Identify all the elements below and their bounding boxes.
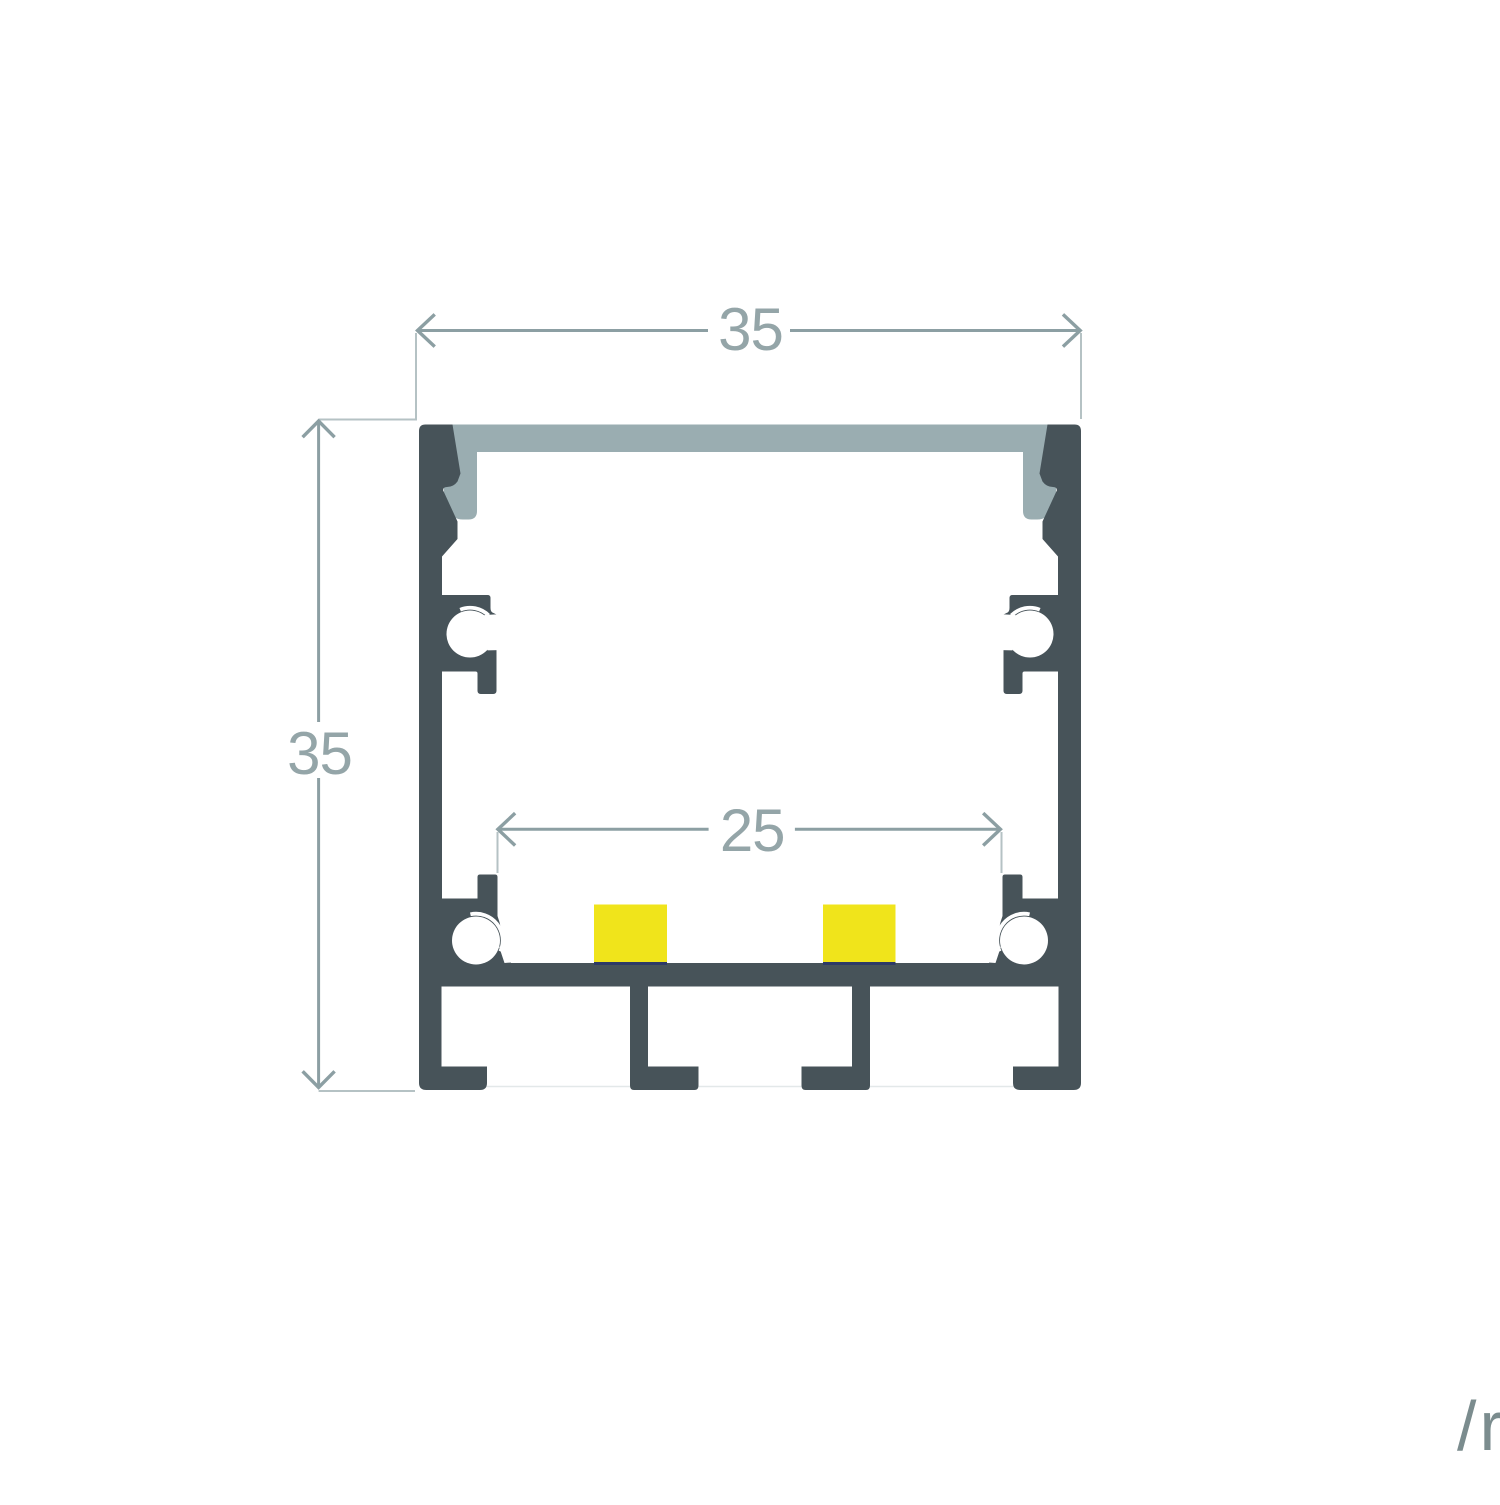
svg-text:25: 25: [720, 797, 785, 864]
svg-text:35: 35: [718, 296, 783, 363]
svg-text:/r: /r: [1457, 1387, 1500, 1465]
svg-text:35: 35: [287, 720, 352, 787]
